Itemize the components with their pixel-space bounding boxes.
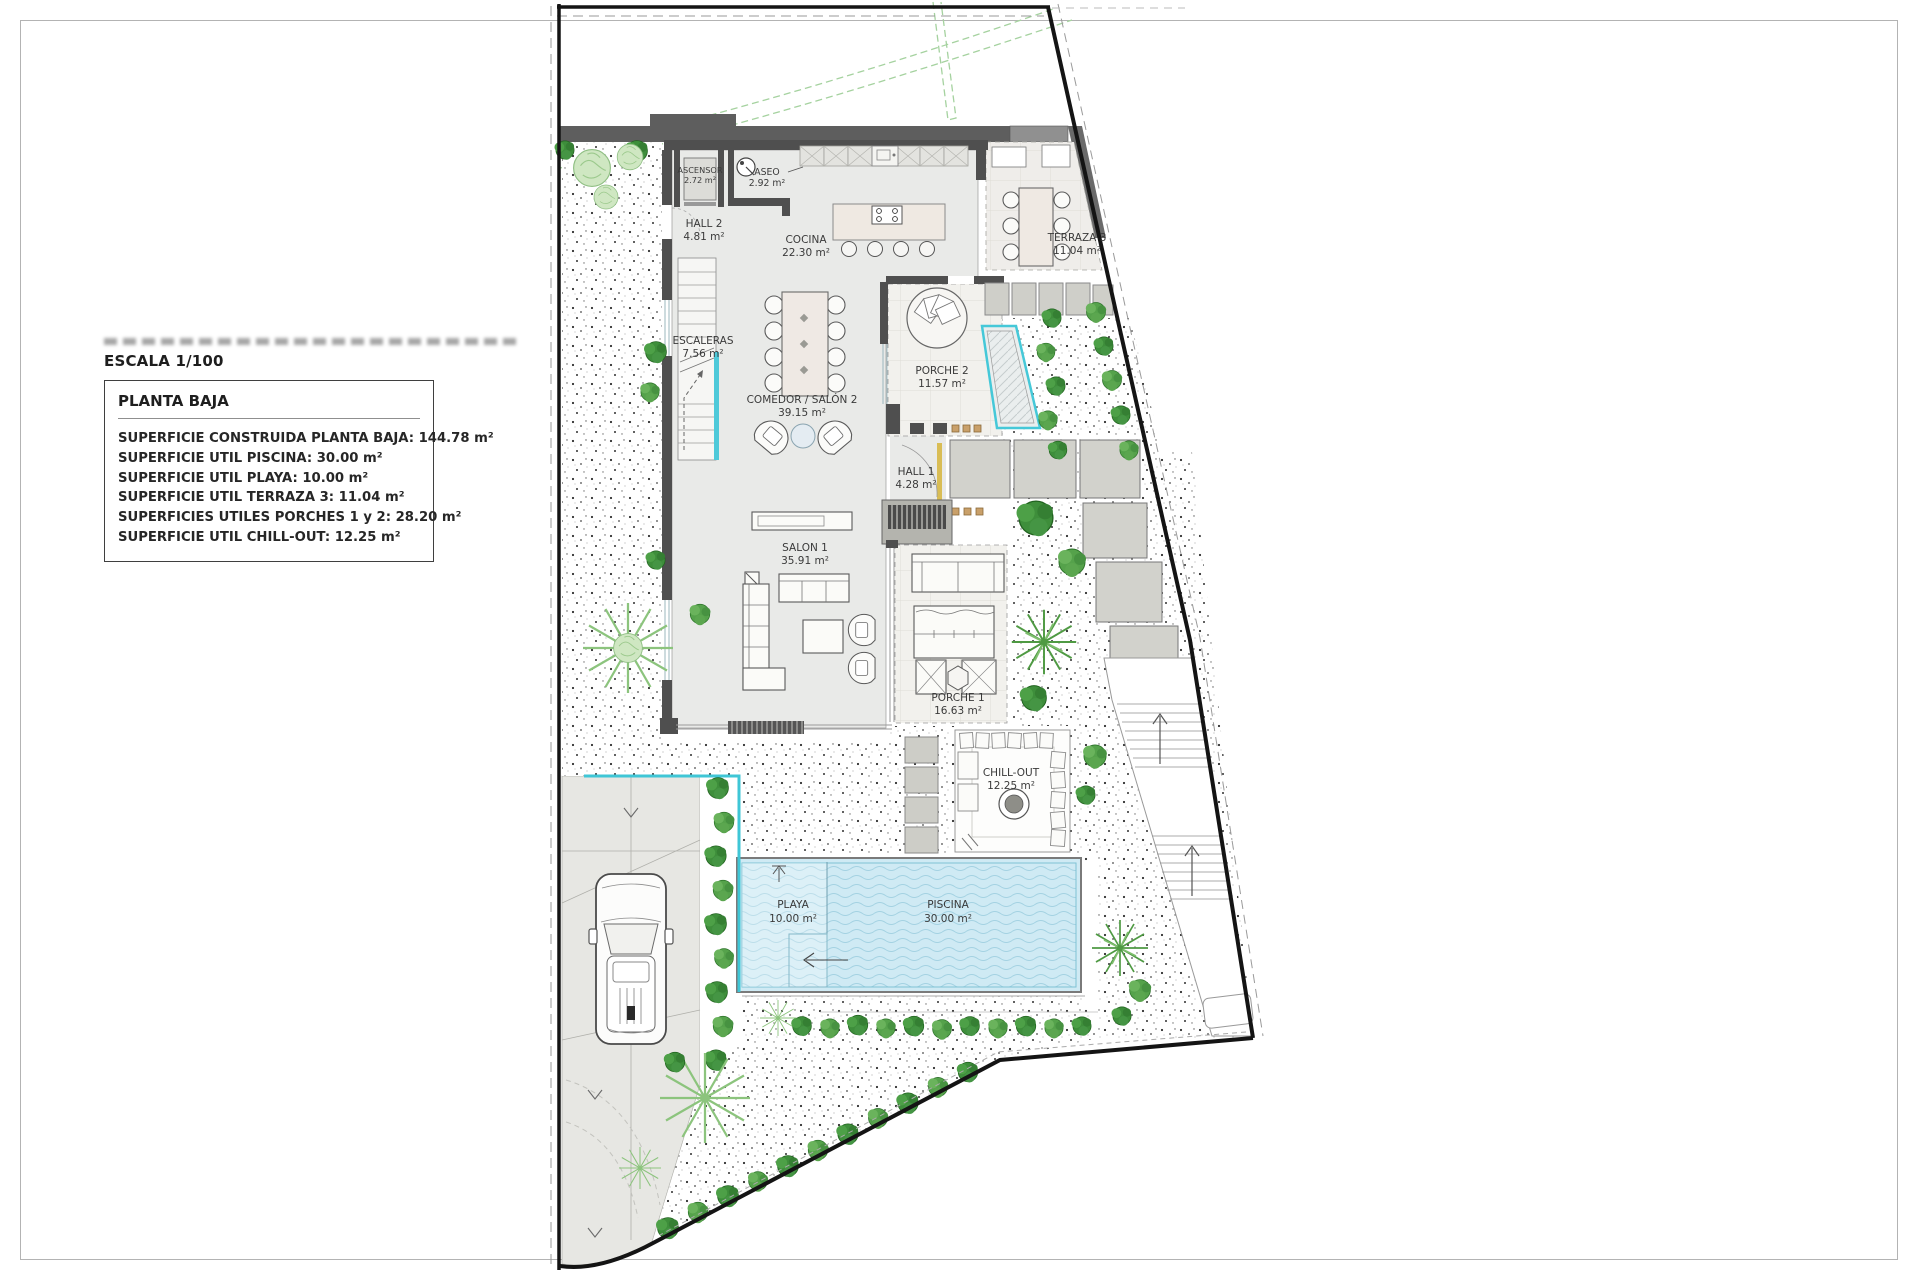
label-cocina-area: 22.30 m² — [782, 247, 830, 259]
label-porche2: PORCHE 2 — [915, 365, 968, 377]
label-hall1: HALL 1 — [898, 466, 935, 478]
label-porche2-area: 11.57 m² — [918, 378, 966, 390]
label-piscina-area: 30.00 m² — [924, 913, 972, 925]
label-aseo: ASEO — [754, 167, 779, 178]
stove-icon — [872, 206, 902, 224]
label-hall1-area: 4.28 m² — [895, 479, 936, 491]
label-terraza3-area: 11.04 m² — [1053, 245, 1101, 257]
label-hall2: HALL 2 — [686, 218, 723, 230]
fireplace-wall — [882, 500, 952, 544]
label-porche1-area: 16.63 m² — [934, 705, 982, 717]
label-comedor: COMEDOR / SALÓN 2 — [747, 393, 858, 406]
floor-plan-sheet: ESCALA 1/100 PLANTA BAJA SUPERFICIE CONS… — [0, 0, 1920, 1280]
label-hall2-area: 4.81 m² — [683, 231, 724, 243]
label-playa: PLAYA — [777, 899, 809, 911]
label-ascensor-area: 2.72 m² — [684, 175, 716, 185]
label-escaleras: ESCALERAS — [672, 335, 733, 347]
label-comedor-area: 39.15 m² — [778, 407, 826, 419]
label-aseo-area: 2.92 m² — [749, 178, 786, 189]
site-plan-drawing: ASCENSOR 2.72 m² ASEO 2.92 m² HALL 2 4.8… — [0, 0, 1920, 1280]
label-ascensor: ASCENSOR — [677, 165, 722, 175]
label-cocina: COCINA — [785, 234, 827, 246]
porche1-furniture — [912, 554, 1004, 694]
label-salon1: SALON 1 — [782, 542, 828, 554]
side-table — [791, 424, 815, 448]
label-playa-area: 10.00 m² — [769, 913, 817, 925]
label-chillout: CHILL-OUT — [983, 767, 1040, 779]
hall1-door — [937, 443, 942, 500]
label-piscina: PISCINA — [927, 899, 969, 911]
label-salon1-area: 35.91 m² — [781, 555, 829, 567]
stair-glass-rail — [714, 352, 719, 460]
label-escaleras-area: 7.56 m² — [682, 348, 723, 360]
car — [589, 874, 673, 1044]
label-porche1: PORCHE 1 — [931, 692, 984, 704]
label-chillout-area: 12.25 m² — [987, 780, 1035, 792]
label-terraza3: TERRAZA 3 — [1047, 232, 1107, 244]
porche2-daybed — [907, 288, 967, 348]
